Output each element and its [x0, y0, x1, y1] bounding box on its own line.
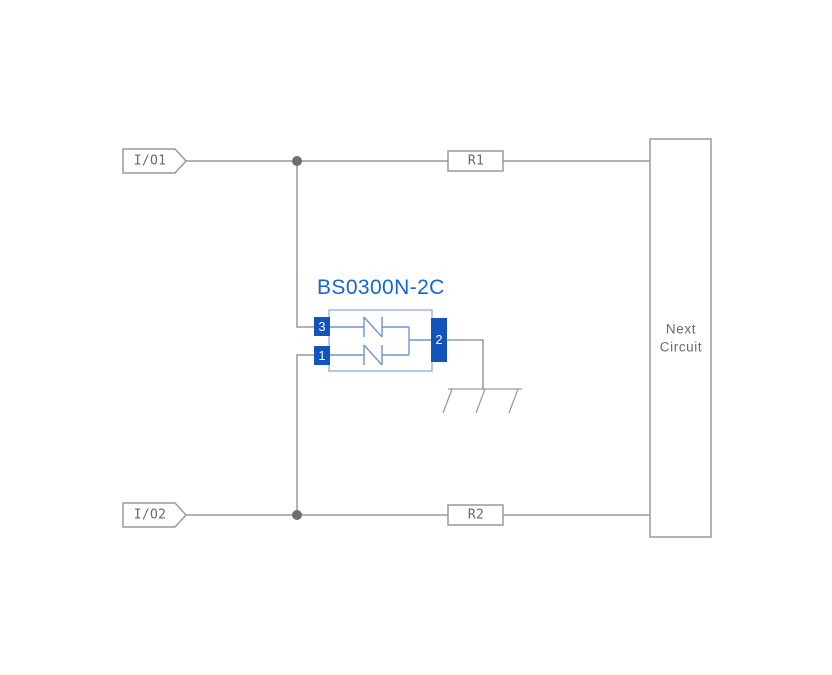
- pin-3-label: 3: [319, 320, 326, 334]
- pin-2-label: 2: [436, 333, 443, 347]
- component-title: BS0300N-2C: [317, 276, 445, 300]
- next-circuit-label-line1: Next: [666, 322, 696, 337]
- wire-junction2-to-pin1: [297, 355, 314, 515]
- wire-pin2-to-ground: [446, 340, 483, 389]
- io2-label: I/O2: [134, 508, 167, 523]
- schematic-svg: [0, 0, 832, 675]
- wire-junction1-to-pin3: [297, 161, 314, 327]
- resistor-r1-label: R1: [468, 154, 484, 169]
- resistor-r2-label: R2: [468, 508, 484, 523]
- next-circuit-box: [650, 139, 711, 537]
- junction-dot-bottom: [292, 510, 302, 520]
- junction-dot-top: [292, 156, 302, 166]
- io1-label: I/O1: [134, 154, 167, 169]
- pin-1-label: 1: [319, 349, 326, 363]
- circuit-diagram: BS0300N-2C I/O1 I/O2 R1 R2 Next Circuit …: [0, 0, 832, 675]
- ground-icon: [443, 389, 522, 413]
- next-circuit-label-line2: Circuit: [660, 340, 702, 355]
